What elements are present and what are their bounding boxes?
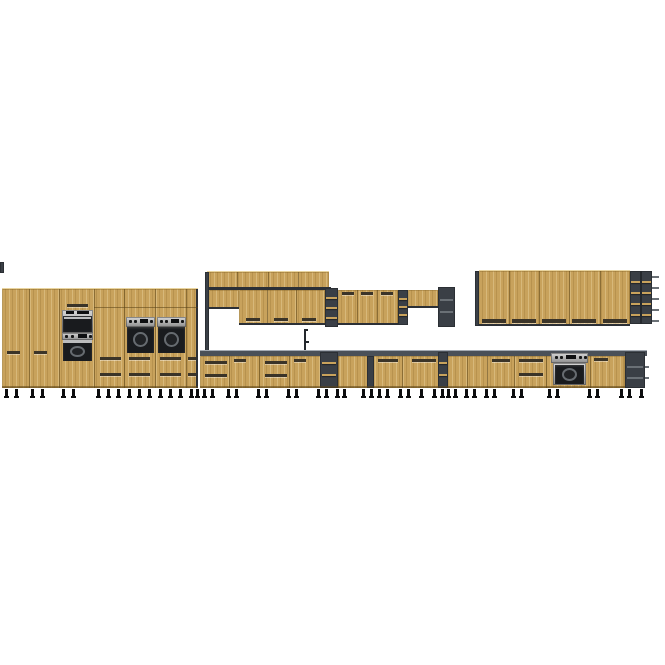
cabinet-foot [370, 389, 373, 396]
door-handle-slot [361, 292, 373, 295]
shelf-board [627, 366, 643, 368]
drawer-handle-slot [188, 373, 196, 376]
cabinet-seam [377, 290, 378, 325]
oven-knob [134, 320, 137, 323]
cabinet-foot [295, 389, 298, 396]
cabinet-foot-base [587, 396, 592, 398]
tall-bank-bottom-shadow [2, 386, 198, 388]
cabinet-foot [386, 389, 389, 396]
cabinet-foot-base [226, 396, 231, 398]
oven-knob [165, 320, 168, 323]
cabinet-foot [117, 389, 120, 396]
cabinet-foot [203, 389, 206, 396]
wall-oven-door-band [63, 340, 92, 343]
cabinet-foot-base [342, 396, 347, 398]
shelf-board [440, 299, 453, 301]
cabinet-foot [138, 389, 141, 396]
side-shelf-tip [652, 320, 659, 322]
wall-side-panel [205, 272, 209, 352]
cabinet-foot [5, 389, 8, 396]
cabinet-foot-base [168, 396, 173, 398]
oven-display [78, 334, 87, 338]
cabinet-foot-base [519, 396, 524, 398]
cabinet-foot-base [189, 396, 194, 398]
cabinet-foot [265, 389, 268, 396]
cabinet-seam [186, 289, 187, 388]
base-open-shelf [320, 352, 338, 388]
door-handle-slot [512, 319, 536, 323]
cabinet-foot [548, 389, 551, 396]
cabinet-foot [620, 389, 623, 396]
wall-cabinet-bottom-edge [239, 323, 325, 325]
door-handle-slot [482, 319, 506, 323]
cabinet-foot-base [619, 396, 624, 398]
cabinet-foot [407, 389, 410, 396]
base-row-bottom-shadow [200, 386, 625, 388]
cabinet-seam [402, 356, 403, 388]
drawer-handle-slot [265, 374, 287, 377]
door-handle-slot [492, 359, 510, 362]
drawer-handle-slot [160, 373, 181, 376]
cabinet-foot-base [639, 396, 644, 398]
cabinet-foot-base [316, 396, 321, 398]
cabinet-foot-base [202, 396, 207, 398]
cabinet-seam [29, 289, 30, 388]
drawer-handle-slot [519, 359, 543, 362]
cabinet-foot-base [369, 396, 374, 398]
shelf-board [326, 317, 337, 319]
cabinet-foot-base [137, 396, 142, 398]
drawer-handle-slot [100, 373, 121, 376]
door-handle-slot [34, 351, 47, 354]
wall-cabinet-mid [338, 290, 398, 325]
door-handle-slot [572, 319, 596, 323]
oven-knob [181, 320, 184, 323]
cabinet-foot [235, 389, 238, 396]
shelf-board [322, 362, 336, 364]
cabinet-seam [539, 271, 540, 326]
cabinet-seam [298, 272, 299, 288]
cabinet-foot-base [4, 396, 9, 398]
cabinet-foot [317, 389, 320, 396]
cabinet-foot-base [440, 396, 445, 398]
cabinet-seam [237, 272, 238, 288]
cabinet-foot-base [484, 396, 489, 398]
door-handle-slot [294, 359, 306, 362]
door-handle-slot [342, 292, 354, 295]
cabinet-seam [590, 356, 591, 388]
cabinet-foot-base [256, 396, 261, 398]
base-end-shelf-unit [625, 352, 645, 388]
cabinet-foot [257, 389, 260, 396]
cabinet-foot-base [453, 396, 458, 398]
cabinet-foot-base [147, 396, 152, 398]
cabinet-foot-base [385, 396, 390, 398]
door-handle-slot [274, 318, 288, 321]
cabinet-foot-base [264, 396, 269, 398]
drawer-handle-slot [205, 374, 227, 377]
cabinet-seam [338, 356, 339, 388]
cabinet-foot-base [419, 396, 424, 398]
cabinet-foot-base [14, 396, 19, 398]
cabinet-foot-base [61, 396, 66, 398]
cabinet-seam [267, 290, 268, 325]
oven-knob [129, 320, 132, 323]
cabinet-foot-base [324, 396, 329, 398]
oven-knob [71, 335, 74, 338]
cabinet-foot [159, 389, 162, 396]
cabinet-foot [62, 389, 65, 396]
base-open-shelf-2 [438, 352, 448, 388]
wall-cabinet-bottom-edge [408, 306, 438, 308]
oven-tower-vent-slot [67, 304, 88, 307]
shelf-board [439, 374, 447, 376]
shelf-board [399, 306, 407, 308]
microwave-display [66, 311, 74, 314]
cabinet-foot [362, 389, 365, 396]
base-filler-gap [367, 356, 374, 388]
cabinet-foot [190, 389, 193, 396]
cabinet-foot-base [40, 396, 45, 398]
cabinet-foot-base [511, 396, 516, 398]
cabinet-foot [343, 389, 346, 396]
base-oven-window [562, 368, 577, 381]
cabinet-foot [72, 389, 75, 396]
cabinet-foot-base [398, 396, 403, 398]
tall-bank-right-edge [196, 289, 198, 388]
drawer-handle-slot [160, 357, 181, 360]
cabinet-foot [336, 389, 339, 396]
faucet-stem [304, 329, 306, 351]
cabinet-seam [569, 271, 570, 326]
door-handle-slot [412, 359, 436, 362]
cabinet-foot-base [286, 396, 291, 398]
cabinet-seam [59, 289, 60, 388]
cabinet-foot [179, 389, 182, 396]
door-handle-slot [542, 319, 566, 323]
shelf-board [399, 314, 407, 316]
side-shelf-tip [645, 377, 649, 379]
cabinet-foot [399, 389, 402, 396]
drawer-handle-slot [188, 357, 196, 360]
cabinet-foot [420, 389, 423, 396]
cabinet-foot-base [294, 396, 299, 398]
cabinet-seam [514, 356, 515, 388]
cabinet-foot-base [30, 396, 35, 398]
oven-knob [65, 335, 68, 338]
cabinet-foot-base [106, 396, 111, 398]
cabinet-seam [600, 271, 601, 326]
shelf-board [440, 311, 453, 313]
oven-knob [89, 335, 92, 338]
shelf-board [322, 374, 336, 376]
cabinet-foot-base [178, 396, 183, 398]
upper-door-seam [94, 307, 198, 308]
cabinet-foot [97, 389, 100, 396]
oven-knob [584, 356, 587, 359]
cabinet-foot-base [116, 396, 121, 398]
cabinet-foot [520, 389, 523, 396]
cabinet-foot-base [432, 396, 437, 398]
oven-knob [579, 356, 582, 359]
oven-display [566, 355, 576, 359]
cabinet-foot-base [234, 396, 239, 398]
oven-display [140, 319, 148, 323]
door-handle-slot [594, 358, 608, 361]
cabinet-foot-base [377, 396, 382, 398]
side-shelf-tip [652, 287, 659, 289]
side-shelf-tip [652, 298, 659, 300]
oven-knob [150, 320, 153, 323]
cabinet-foot-base [71, 396, 76, 398]
cabinet-foot [640, 389, 643, 396]
cabinet-foot [31, 389, 34, 396]
drawer-handle-slot [205, 361, 227, 364]
cabinet-foot-base [127, 396, 132, 398]
crop-sliver [0, 262, 4, 273]
cabinet-seam [509, 271, 510, 326]
cabinet-seam [467, 356, 468, 388]
cabinet-foot-base [555, 396, 560, 398]
door-handle-slot [246, 318, 260, 321]
faucet-spout [304, 329, 308, 331]
shelf-board [326, 307, 337, 309]
cabinet-seam [229, 356, 230, 388]
kitchen-product-image [0, 0, 665, 665]
side-shelf-tip [645, 366, 649, 368]
cabinet-foot [148, 389, 151, 396]
drawer-handle-slot [265, 361, 287, 364]
cabinet-foot [433, 389, 436, 396]
cabinet-foot-base [195, 396, 200, 398]
cabinet-foot [454, 389, 457, 396]
door-handle-slot [7, 351, 20, 354]
cabinet-seam [487, 356, 488, 388]
side-shelf-tip [652, 276, 659, 278]
compact-oven-window [133, 332, 148, 347]
cabinet-foot-base [446, 396, 451, 398]
cabinet-foot [169, 389, 172, 396]
microwave-buttons [77, 311, 89, 314]
cabinet-foot-base [464, 396, 469, 398]
cabinet-foot [227, 389, 230, 396]
cabinet-seam [289, 356, 290, 388]
cabinet-foot [15, 389, 18, 396]
cabinet-foot-base [627, 396, 632, 398]
side-shelf-tip [652, 309, 659, 311]
cabinet-seam [124, 289, 125, 388]
cabinet-foot [107, 389, 110, 396]
wall-cabinet-bottom-edge [479, 324, 630, 326]
cabinet-foot [485, 389, 488, 396]
shelf-board [399, 298, 407, 300]
drawer-handle-slot [100, 357, 121, 360]
door-handle-slot [603, 319, 627, 323]
cabinet-foot-base [361, 396, 366, 398]
cabinet-foot [493, 389, 496, 396]
compact-oven-window [164, 332, 179, 347]
cabinet-foot [473, 389, 476, 396]
cabinet-foot [512, 389, 515, 396]
oven-knob [560, 356, 563, 359]
cabinet-foot [465, 389, 468, 396]
cabinet-foot [447, 389, 450, 396]
cabinet-foot-base [595, 396, 600, 398]
wall-cabinet-bottom-edge [338, 323, 398, 325]
door-handle-slot [381, 292, 393, 295]
cabinet-foot-base [158, 396, 163, 398]
cabinet-foot [196, 389, 199, 396]
cabinet-seam [94, 289, 95, 388]
oven-display [171, 319, 179, 323]
cabinet-foot [588, 389, 591, 396]
cabinet-foot-base [406, 396, 411, 398]
drawer-handle-slot [129, 373, 150, 376]
cabinet-foot [287, 389, 290, 396]
cabinet-seam [546, 356, 547, 388]
wall-cabinet-bottom-edge [209, 307, 239, 309]
faucet-handle [306, 341, 309, 343]
wall-oven-window [70, 346, 85, 357]
microwave-handle [64, 317, 91, 319]
cabinet-foot [378, 389, 381, 396]
cabinet-foot-base [492, 396, 497, 398]
door-handle-slot [302, 318, 316, 321]
cabinet-foot [128, 389, 131, 396]
cabinet-seam [296, 290, 297, 325]
shelf-board [439, 362, 447, 364]
cabinet-foot [211, 389, 214, 396]
cabinet-foot [441, 389, 444, 396]
cabinet-foot [556, 389, 559, 396]
cabinet-foot [325, 389, 328, 396]
shelf-board [627, 377, 643, 379]
oven-knob [160, 320, 163, 323]
cabinet-foot [41, 389, 44, 396]
grid-divider [640, 271, 642, 324]
cabinet-foot-base [472, 396, 477, 398]
cabinet-foot-base [96, 396, 101, 398]
cabinet-foot [628, 389, 631, 396]
wall-open-tall-unit [438, 287, 455, 327]
cabinet-seam [268, 272, 269, 288]
cabinet-foot-base [210, 396, 215, 398]
cabinet-seam [259, 356, 260, 388]
cabinet-seam [155, 289, 156, 388]
wall-right-bank [479, 271, 630, 326]
countertop-edge [200, 350, 647, 351]
drawer-handle-slot [129, 357, 150, 360]
cabinet-seam [357, 290, 358, 325]
shelf-board [326, 297, 337, 299]
oven-knob [555, 356, 558, 359]
cabinet-foot-base [335, 396, 340, 398]
cabinet-foot [596, 389, 599, 396]
drawer-handle-slot [519, 373, 543, 376]
door-handle-slot [234, 359, 246, 362]
cabinet-foot-base [547, 396, 552, 398]
door-handle-slot [378, 359, 398, 362]
